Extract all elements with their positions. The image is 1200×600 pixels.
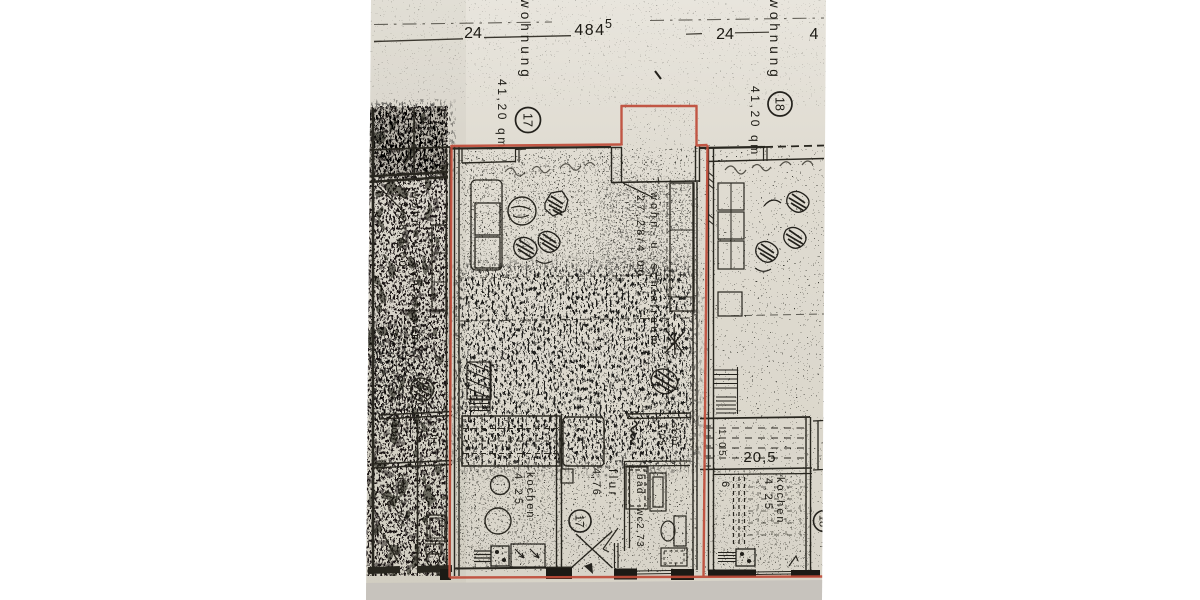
svg-text:105: 105 <box>413 421 424 443</box>
svg-text:schr.: schr. <box>428 421 439 450</box>
svg-text:bad - wc2,73: bad - wc2,73 <box>634 474 645 548</box>
svg-text:wohnung: wohnung <box>767 0 782 81</box>
svg-text:1,05: 1,05 <box>656 424 667 447</box>
svg-text:20,5: 20,5 <box>743 449 776 466</box>
svg-text:wohnung: wohnung <box>518 0 533 81</box>
svg-text:wohn. u. schlafraum: wohn. u. schlafraum <box>409 190 421 346</box>
svg-text:18: 18 <box>773 97 787 111</box>
svg-text:5: 5 <box>605 17 612 31</box>
svg-text:flur: flur <box>606 469 618 499</box>
svg-text:4,25: 4,25 <box>512 473 524 507</box>
svg-text:17: 17 <box>573 515 585 528</box>
svg-text:400: 400 <box>388 421 399 441</box>
svg-text:27,28/4,00: 27,28/4,00 <box>634 195 646 279</box>
svg-text:17: 17 <box>521 113 535 127</box>
svg-text:4,76: 4,76 <box>590 468 602 497</box>
svg-text:2,73: 2,73 <box>384 483 395 507</box>
svg-text:24: 24 <box>716 26 734 43</box>
svg-text:484: 484 <box>574 22 605 39</box>
svg-text:kochen: kochen <box>524 472 536 519</box>
svg-text:27,28/4,00: 27,28/4,00 <box>396 193 408 269</box>
svg-text:schr.: schr. <box>669 423 680 452</box>
svg-text:wohn. u. schlafraum: wohn. u. schlafraum <box>648 191 660 347</box>
svg-text:1,05: 1,05 <box>716 429 727 458</box>
svg-text:4,25: 4,25 <box>762 478 774 512</box>
svg-text:24: 24 <box>464 25 482 42</box>
svg-text:4: 4 <box>810 26 819 43</box>
svg-text:6: 6 <box>719 481 731 487</box>
svg-text:bad + wc: bad + wc <box>395 474 406 526</box>
svg-text:41,20 qm: 41,20 qm <box>495 79 509 150</box>
svg-text:kochen: kochen <box>774 477 786 524</box>
